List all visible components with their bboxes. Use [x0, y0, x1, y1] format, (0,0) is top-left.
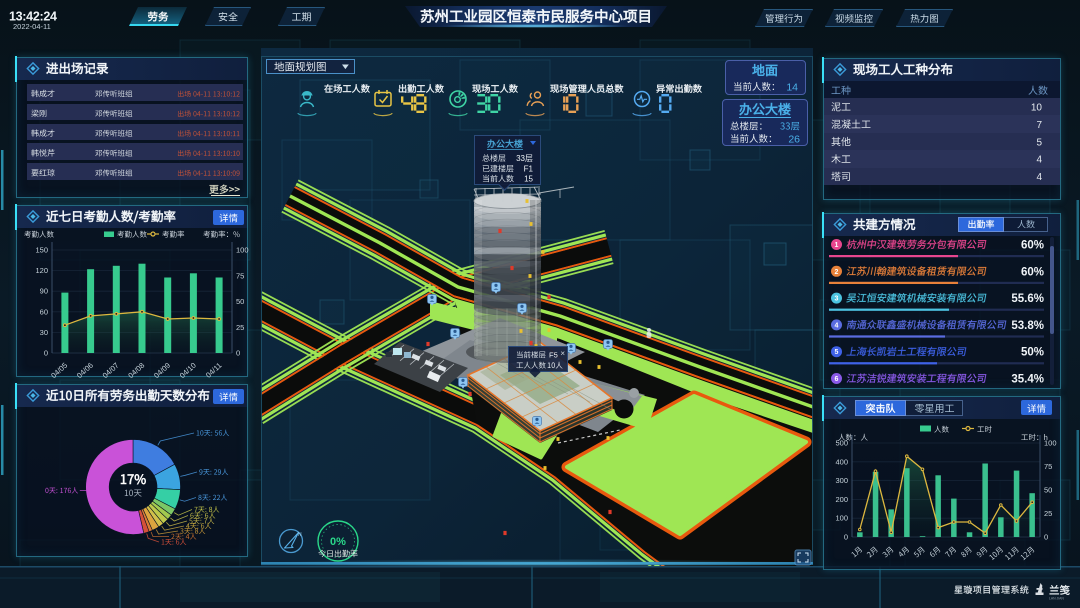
svg-text:2022-04-11: 2022-04-11: [13, 22, 51, 31]
svg-text:F1: F1: [524, 165, 534, 174]
svg-text:400: 400: [835, 457, 848, 466]
svg-text:LAN JIAN: LAN JIAN: [1049, 597, 1064, 601]
svg-text:04/05: 04/05: [49, 361, 69, 380]
svg-text:26: 26: [788, 134, 800, 146]
svg-text:60: 60: [40, 307, 48, 316]
svg-text:04/10: 04/10: [178, 361, 198, 380]
svg-text:90: 90: [40, 287, 48, 296]
svg-text:04/06: 04/06: [75, 361, 95, 380]
svg-text:0: 0: [236, 349, 240, 358]
svg-text:6: 6: [835, 376, 839, 383]
svg-text:100: 100: [236, 246, 249, 255]
svg-text:0: 0: [44, 349, 48, 358]
svg-text:0%: 0%: [330, 536, 346, 548]
svg-text:0: 0: [844, 533, 848, 542]
svg-text:30: 30: [40, 328, 48, 337]
svg-text:50: 50: [1044, 486, 1052, 495]
svg-text:4: 4: [1036, 155, 1042, 166]
svg-text:60%: 60%: [1021, 240, 1044, 252]
svg-text:50: 50: [236, 297, 244, 306]
svg-text:25: 25: [236, 323, 244, 332]
svg-text:53.8%: 53.8%: [1011, 320, 1044, 332]
svg-text:04/07: 04/07: [101, 361, 121, 380]
svg-text:50%: 50%: [1021, 347, 1044, 359]
svg-text:7: 7: [1036, 120, 1042, 131]
svg-text:100: 100: [1044, 439, 1057, 448]
svg-text:120: 120: [35, 266, 48, 275]
svg-text:14: 14: [786, 82, 798, 94]
svg-text:04/09: 04/09: [152, 361, 172, 380]
svg-text:300: 300: [835, 476, 848, 485]
svg-text:35.4%: 35.4%: [1011, 374, 1044, 386]
svg-text:25: 25: [1044, 509, 1052, 518]
svg-text:04/11: 04/11: [204, 361, 224, 380]
svg-text:75: 75: [1044, 462, 1052, 471]
svg-text:F5: F5: [549, 351, 558, 360]
svg-text:200: 200: [835, 495, 848, 504]
svg-text:10: 10: [1031, 103, 1043, 114]
svg-text:1: 1: [835, 242, 839, 249]
svg-text:15: 15: [524, 175, 533, 184]
svg-text:100: 100: [835, 514, 848, 523]
svg-text:5: 5: [835, 349, 839, 356]
svg-text:5: 5: [1036, 137, 1042, 148]
svg-text:33层: 33层: [516, 154, 533, 163]
svg-text:500: 500: [835, 439, 848, 448]
svg-text:55.6%: 55.6%: [1011, 293, 1044, 305]
svg-text:0: 0: [1044, 533, 1048, 542]
svg-text:4: 4: [1036, 172, 1042, 183]
svg-text:4: 4: [835, 322, 839, 329]
svg-text:75: 75: [236, 271, 244, 280]
svg-text:150: 150: [35, 246, 48, 255]
svg-text:60%: 60%: [1021, 266, 1044, 278]
svg-text:3: 3: [835, 296, 839, 303]
svg-text:04/08: 04/08: [126, 361, 146, 380]
svg-text:2: 2: [835, 269, 839, 276]
svg-text:×: ×: [560, 349, 565, 358]
